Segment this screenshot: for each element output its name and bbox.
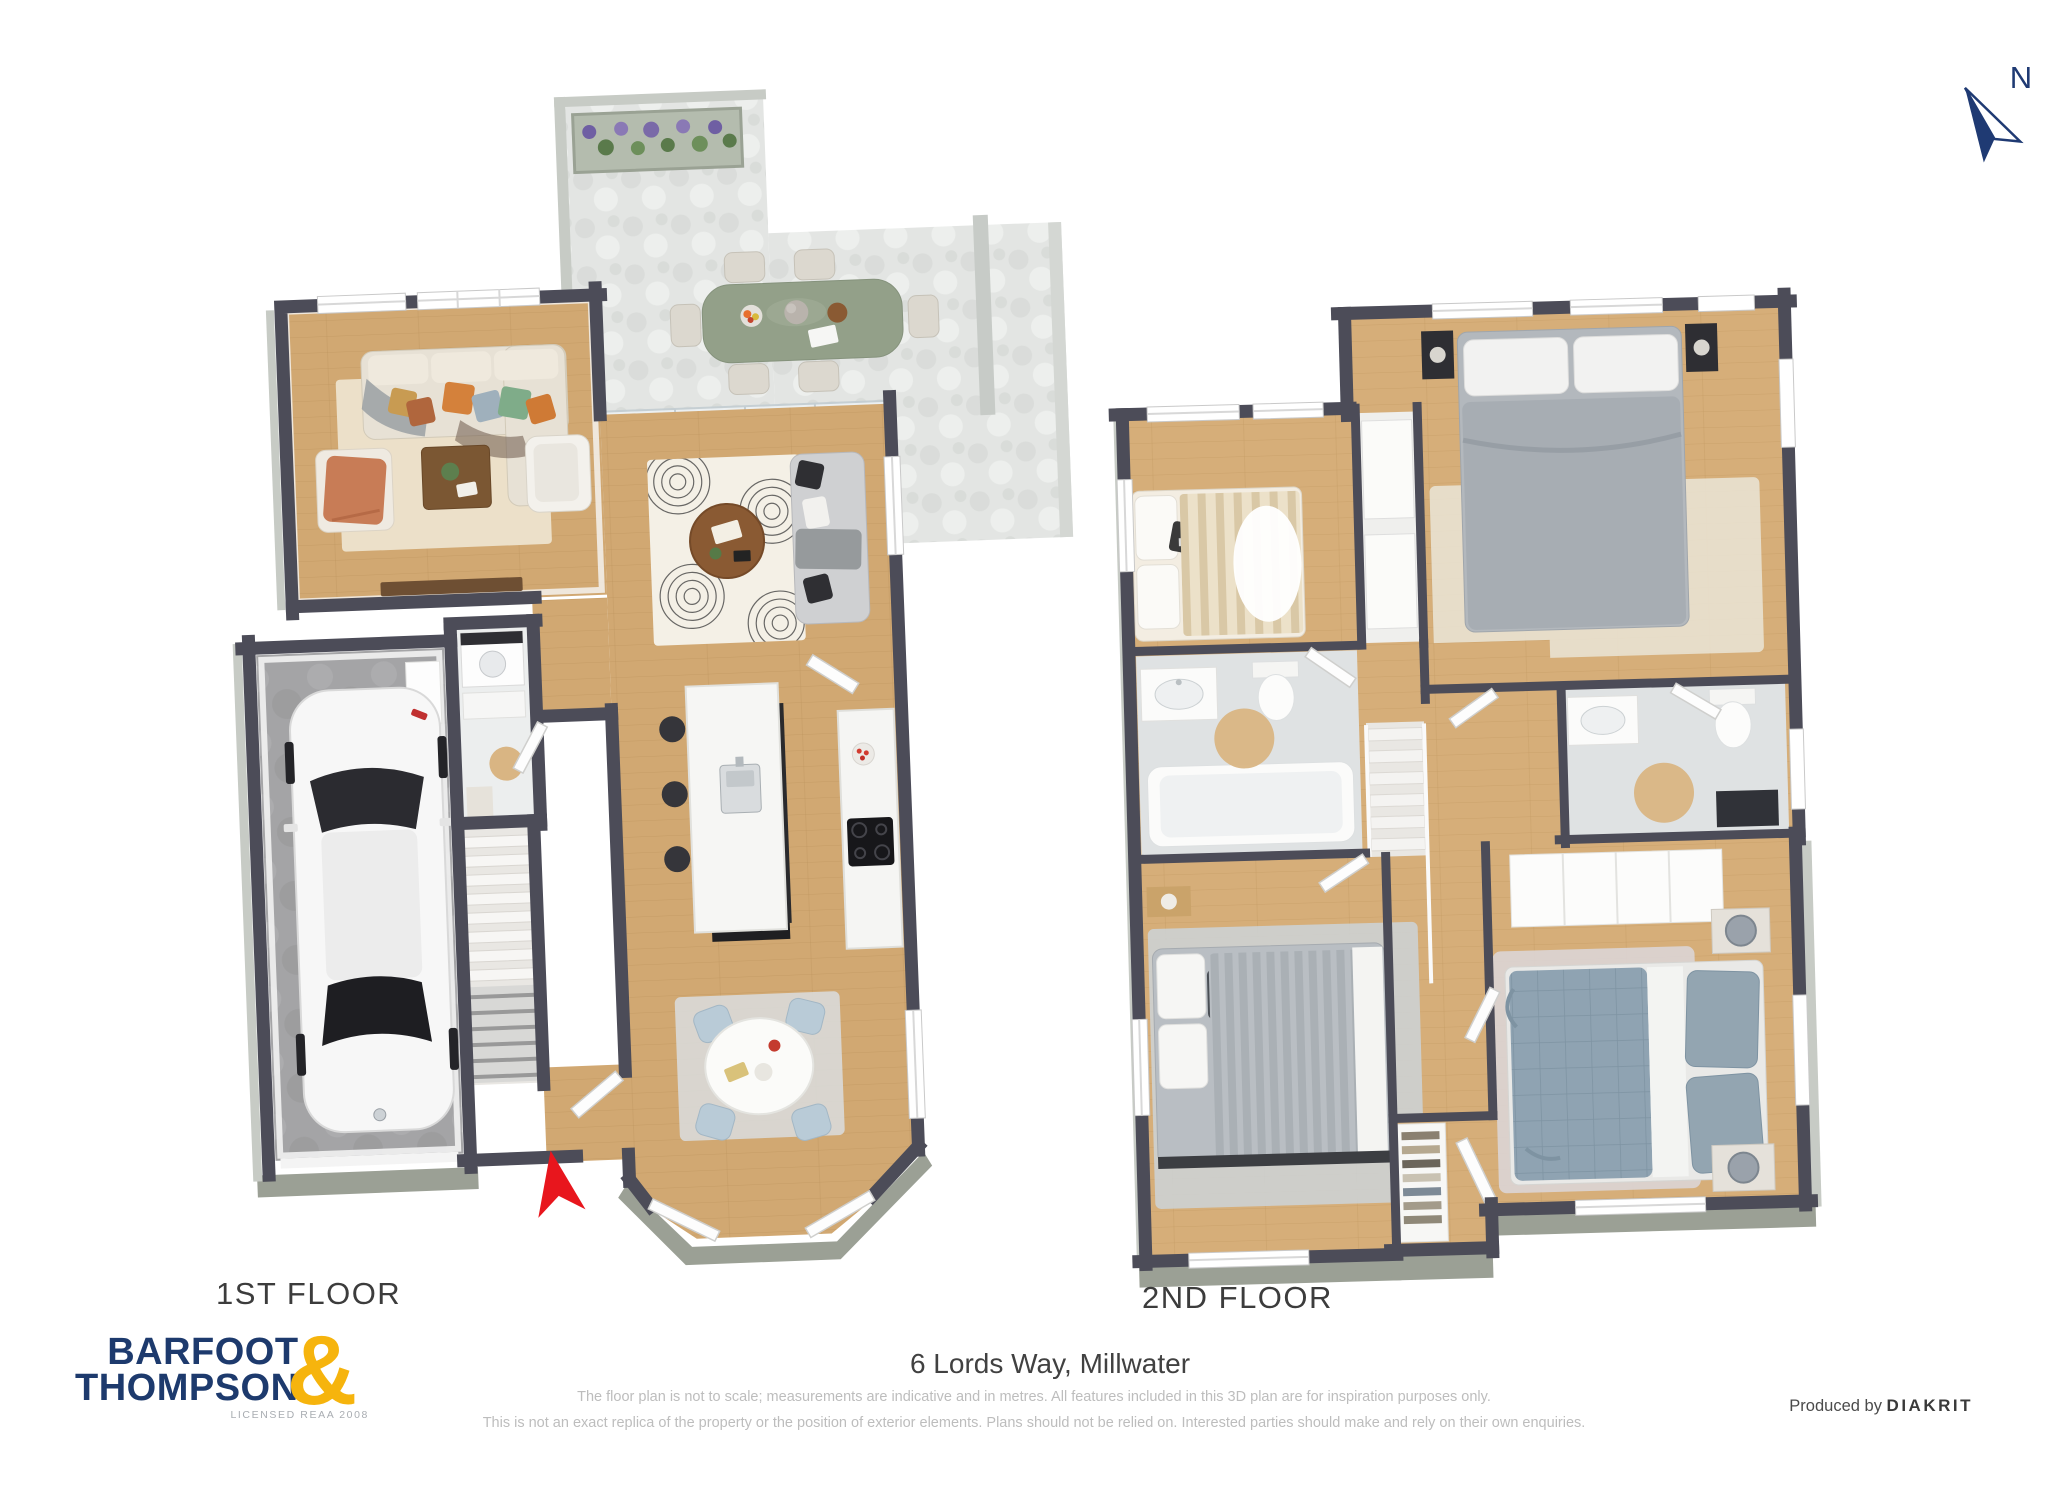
kitchen-island	[686, 683, 793, 943]
produced-by: Produced by DIAKRIT	[1655, 1396, 1973, 1416]
produced-by-label: Produced by	[1789, 1397, 1882, 1415]
second-floor-label: 2ND FLOOR	[1142, 1280, 1333, 1316]
vanity-right	[1567, 695, 1638, 745]
nightstand-bottom	[1712, 1144, 1775, 1192]
garage	[256, 648, 467, 1169]
dining-nook	[675, 991, 846, 1147]
floorplan-page: N 1ST FLOOR 2ND FLOOR BARFOOT THOMPSON &…	[0, 0, 2048, 1494]
north-label: N	[2010, 60, 2032, 95]
logo-license-text: LICENSED REAA 2008	[75, 1409, 369, 1421]
living-room	[281, 295, 607, 607]
bed-top-right	[1421, 323, 1725, 633]
bath-counter	[1716, 790, 1779, 828]
white-armchair	[525, 434, 592, 512]
cooktop	[847, 817, 895, 867]
master-bedroom	[1482, 841, 1802, 1206]
bed-top-left	[1131, 487, 1305, 642]
planter-box	[573, 108, 743, 172]
vanity-left	[1140, 667, 1217, 721]
second-floor-plan	[1102, 280, 1850, 1310]
kitchen-counter	[838, 709, 903, 949]
bathroom-right	[1561, 681, 1789, 837]
bathroom-left	[1136, 650, 1362, 856]
producer-name: DIAKRIT	[1887, 1396, 1973, 1415]
logo-ampersand: &	[287, 1335, 358, 1406]
bedroom-top-right	[1421, 307, 1789, 689]
kitchen	[658, 679, 903, 956]
stair-runner	[470, 985, 542, 1084]
laundry	[456, 625, 537, 824]
nightstand-top	[1711, 908, 1770, 954]
lounge-sofa	[790, 452, 870, 625]
logo-word-barfoot: BARFOOT	[75, 1334, 299, 1370]
first-floor-label: 1ST FLOOR	[216, 1276, 401, 1312]
outer-wall-face	[257, 1167, 479, 1197]
bedroom-top-left	[1129, 415, 1359, 647]
disclaimer-line-2: This is not an exact replica of the prop…	[364, 1410, 1704, 1436]
walkin-closet	[1393, 1116, 1499, 1249]
disclaimer-line-1: The floor plan is not to scale; measurem…	[364, 1384, 1704, 1410]
first-floor-plan	[87, 52, 1113, 1294]
car	[279, 686, 466, 1134]
north-compass: N	[1925, 48, 2043, 168]
logo-word-thompson: THOMPSON	[75, 1370, 299, 1406]
disclaimer: The floor plan is not to scale; measurem…	[364, 1384, 1704, 1436]
accent-armchair	[315, 448, 394, 533]
builtin-wardrobe-column	[1357, 412, 1421, 644]
barfoot-thompson-logo: BARFOOT THOMPSON & LICENSED REAA 2008	[75, 1334, 395, 1421]
property-address: 6 Lords Way, Millwater	[700, 1348, 1400, 1380]
coffee-table	[421, 445, 491, 510]
